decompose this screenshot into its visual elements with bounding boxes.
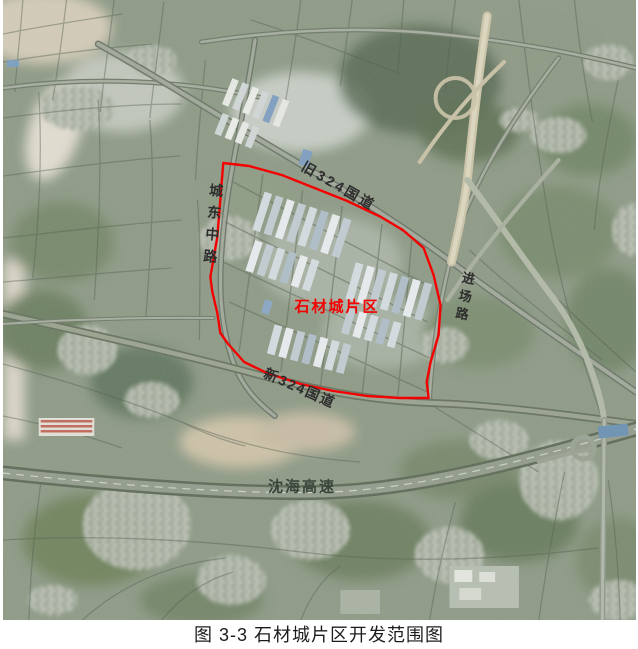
satellite-map: 旧324国道 城东中路 进场路 新324国道 沈海高速 石材城片区: [3, 0, 636, 620]
texture-grain: [3, 0, 636, 620]
satellite-imagery: [3, 0, 636, 620]
figure-page: 旧324国道 城东中路 进场路 新324国道 沈海高速 石材城片区 图 3-3 …: [0, 0, 638, 649]
figure-caption: 图 3-3 石材城片区开发范围图: [0, 621, 638, 649]
